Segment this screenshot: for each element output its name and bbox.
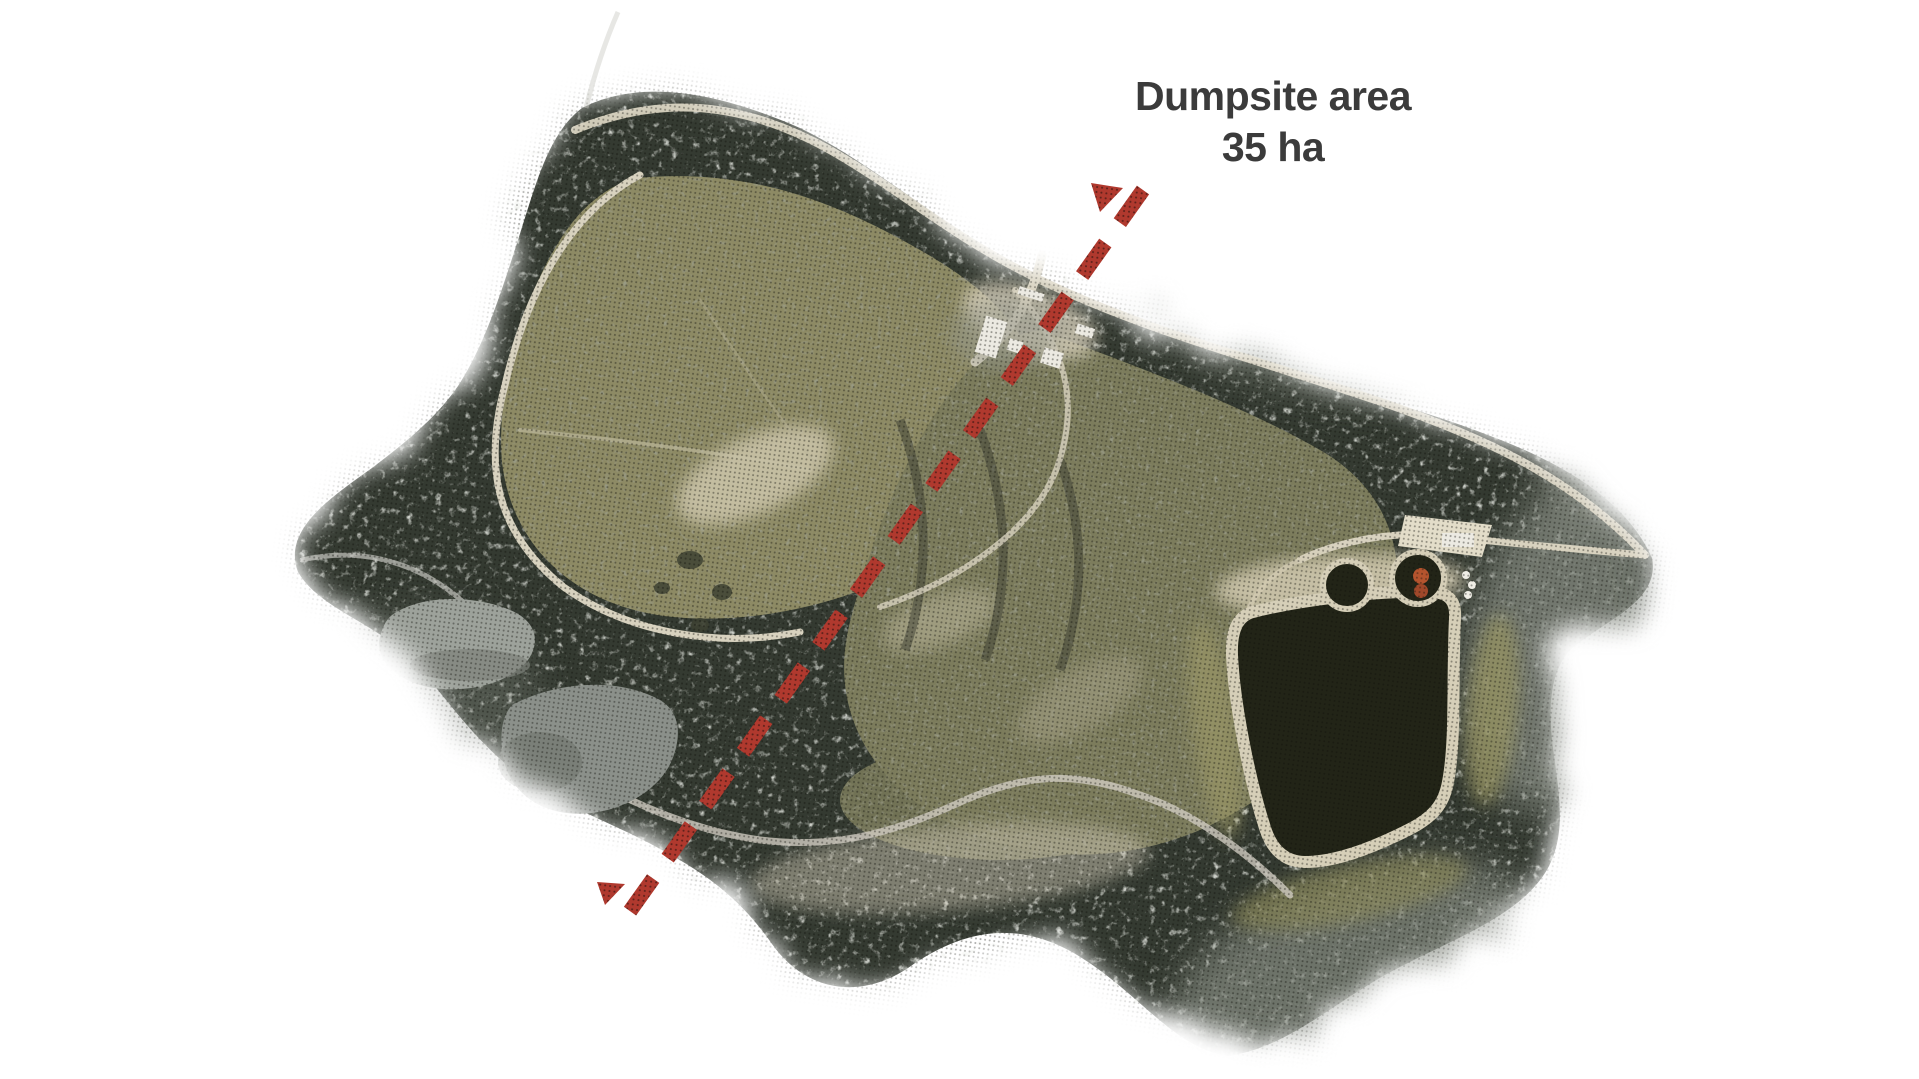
infographic-canvas: Dumpsite area 35 ha: [0, 0, 1919, 1079]
halftone-overlay: [0, 0, 1919, 1079]
aerial-photo: [0, 0, 1919, 1079]
dumpsite-area-size: 35 ha: [1222, 124, 1326, 170]
aerial-photo-map: Dumpsite area 35 ha: [0, 0, 1919, 1079]
dumpsite-area-title: Dumpsite area: [1135, 73, 1413, 119]
